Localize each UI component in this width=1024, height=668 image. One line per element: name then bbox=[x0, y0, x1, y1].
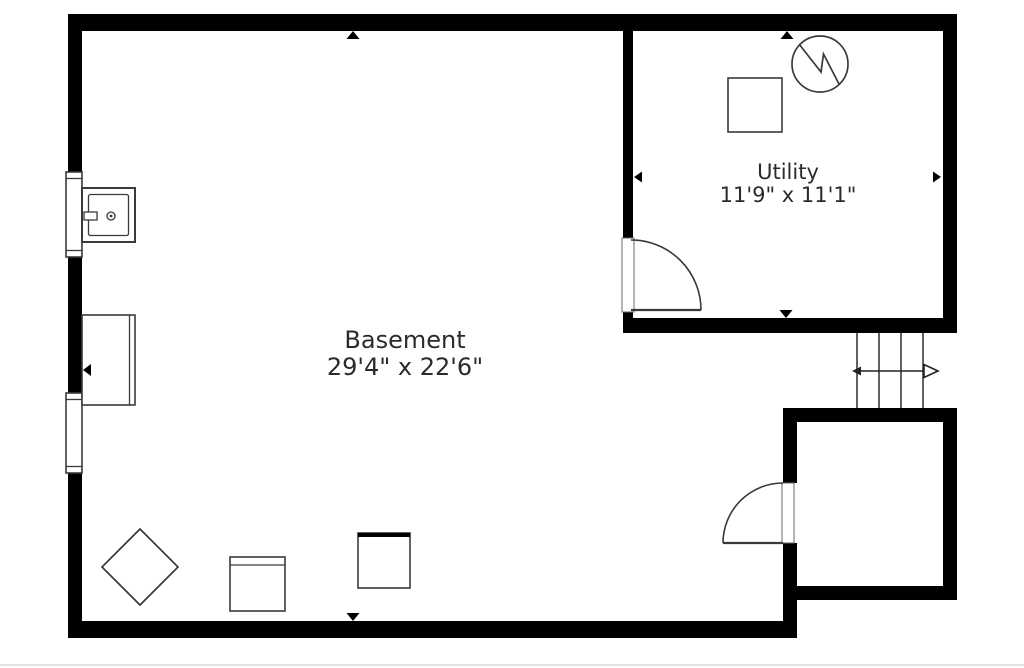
basement-dim-arrow-top bbox=[347, 31, 360, 39]
utility-dim-arrow-bottom bbox=[780, 310, 793, 318]
utility-dim-arrow-right bbox=[933, 172, 941, 183]
floor-plan: Basement 29'4" x 22'6" Utility 11'9" x 1… bbox=[0, 0, 1024, 668]
wall-top bbox=[68, 14, 957, 31]
utility-door-swing-arc bbox=[631, 240, 701, 310]
storage-door bbox=[723, 483, 794, 543]
utility-door bbox=[622, 238, 701, 312]
utility-door-opening bbox=[622, 238, 634, 312]
utility-room-dimensions: 11'9" x 11'1" bbox=[720, 183, 857, 207]
basement-room-name: Basement bbox=[344, 326, 465, 354]
wall-right-upper bbox=[943, 14, 957, 333]
utility-dim-arrow-top bbox=[781, 31, 794, 39]
stairs bbox=[852, 333, 938, 408]
diamond-table-icon bbox=[102, 529, 178, 605]
walls bbox=[68, 14, 957, 638]
wall-left-middle bbox=[68, 257, 82, 393]
shelf-unit-icon bbox=[82, 315, 135, 405]
appliance-box-thick-top-icon bbox=[358, 533, 410, 588]
furnace-icon bbox=[728, 78, 782, 132]
window-lower-left bbox=[66, 393, 82, 473]
wall-right-lower bbox=[943, 408, 957, 600]
storage-wall-bottom bbox=[783, 586, 957, 600]
storage-door-opening bbox=[782, 483, 794, 543]
wall-left-upper bbox=[68, 14, 82, 172]
utility-wall-left-upper bbox=[623, 31, 633, 238]
storage-door-swing-arc bbox=[723, 483, 783, 543]
storage-wall-left-upper bbox=[783, 422, 797, 483]
utility-wall-bottom bbox=[623, 318, 957, 333]
basement-dim-arrow-bottom bbox=[347, 613, 360, 621]
utility-room-name: Utility bbox=[757, 160, 819, 184]
floor-plan-drawing: Basement 29'4" x 22'6" Utility 11'9" x 1… bbox=[0, 0, 1024, 668]
basement-room-dimensions: 29'4" x 22'6" bbox=[327, 353, 483, 381]
wall-bottom bbox=[68, 621, 797, 638]
wall-left-lower bbox=[68, 473, 82, 638]
water-heater-icon bbox=[792, 36, 848, 92]
storage-wall-top bbox=[783, 408, 957, 422]
window-upper-left bbox=[66, 172, 82, 257]
appliance-box-icon bbox=[230, 557, 285, 611]
laundry-sink-icon bbox=[82, 188, 135, 242]
utility-dim-arrow-left bbox=[634, 172, 642, 183]
stairs-direction-arrow-icon bbox=[852, 365, 938, 378]
